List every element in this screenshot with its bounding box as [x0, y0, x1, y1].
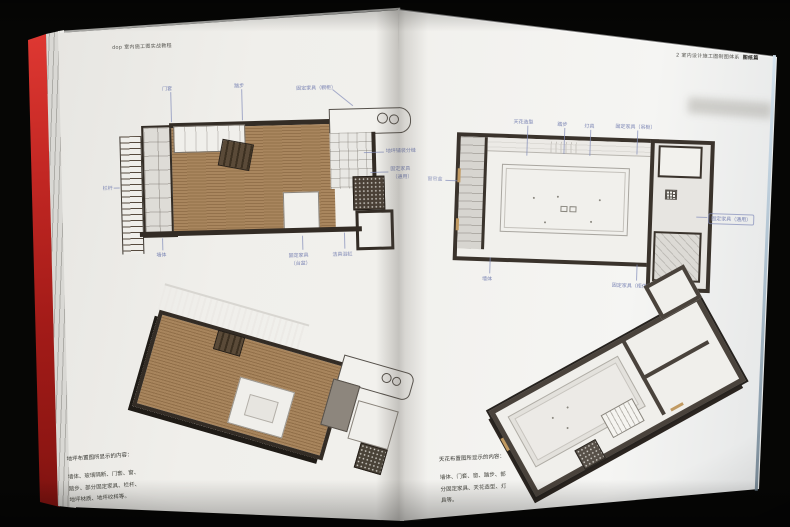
downlight-dot — [533, 197, 535, 199]
downlight-dot — [544, 221, 546, 223]
downlight-dot — [557, 196, 559, 198]
leader-door-frame — [170, 92, 172, 122]
leader-fixed-furniture-top — [332, 89, 353, 106]
label-fixed-right-1: 固定家具 — [390, 165, 410, 173]
label-fixed-furniture-top: 固定家具（橱柜） — [296, 84, 336, 92]
book-photo: dop 室内施工图实战教程 2 室内设计施工图制图体系图纸篇 门套 — [0, 0, 790, 527]
leader-fixed-bottom — [302, 236, 303, 250]
ceiling-plan-2d: 天花造型 踏步 灯具 固定家具（吊柜） 窗帘盒 固定家具（通用） 墙体 固定家具… — [445, 106, 781, 307]
leader-fixed-bottom-r — [636, 265, 638, 281]
label-ceiling-steps: 踏步 — [557, 121, 567, 128]
label-fixed-top: 固定家具（吊柜） — [615, 123, 655, 131]
label-fixed-bottom-2: （台盆） — [291, 260, 311, 268]
leader-sanitary — [344, 233, 345, 249]
ceiling-vent-mark — [560, 206, 567, 212]
label-steps: 踏步 — [234, 82, 244, 89]
ceiling-balcony-band — [457, 136, 488, 249]
label-ceiling-wall: 墙体 — [482, 275, 492, 282]
label-fixed-right-2: （通用） — [392, 173, 412, 181]
floor-plan-2d: 门套 踏步 固定家具（橱柜） 地坪铺装分缝 固定家具 （通用） 洁具浴缸 固定家… — [100, 77, 427, 277]
appliance-box — [352, 176, 385, 211]
label-railing: 栏杆 — [103, 185, 113, 192]
label-ceiling-shape: 天花造型 — [513, 118, 533, 126]
door-frame-mark — [456, 218, 459, 230]
right-running-head-bold: 图纸篇 — [743, 55, 759, 62]
axon-island-block — [347, 400, 398, 450]
leader-ceiling-wall — [489, 257, 491, 273]
ceiling-recess-inner — [504, 168, 626, 232]
label-wall: 墙体 — [156, 251, 166, 258]
label-floor-paving: 地坪铺装分缝 — [386, 147, 416, 155]
fixed-furniture-block — [283, 191, 320, 230]
stair-steps-dark — [218, 139, 254, 171]
leader-steps — [241, 89, 243, 120]
left-caption-block: 地坪布置图所显示的内容： 墙体、玻璃隔断、门套、窗、 踏步、部分固定家具、栏杆、… — [66, 445, 204, 507]
downlight-dot — [590, 221, 592, 223]
label-curtain-box: 窗帘盒 — [427, 175, 442, 183]
door-frame-mark — [457, 168, 460, 182]
right-caption-block: 天花布置图所显示的内容： 墙体、门套、窗、踏步、部 分固定家具、天花造型、灯 具… — [439, 449, 562, 508]
downlight-dot — [599, 199, 601, 201]
ceiling-vent-mark — [569, 206, 576, 212]
vent-grid-icon — [665, 189, 677, 199]
kitchen-counter — [329, 107, 412, 135]
leader-fixed-right — [370, 171, 388, 172]
leader-wall — [162, 238, 163, 250]
leader-railing — [114, 188, 120, 189]
label-fixed-bottom-1: 固定家具 — [288, 252, 308, 260]
label-fixed-right-boxed: 固定家具（通用） — [708, 213, 754, 226]
ceiling-entry-room — [658, 145, 703, 179]
label-sanitary: 洁具浴缸 — [332, 250, 352, 258]
